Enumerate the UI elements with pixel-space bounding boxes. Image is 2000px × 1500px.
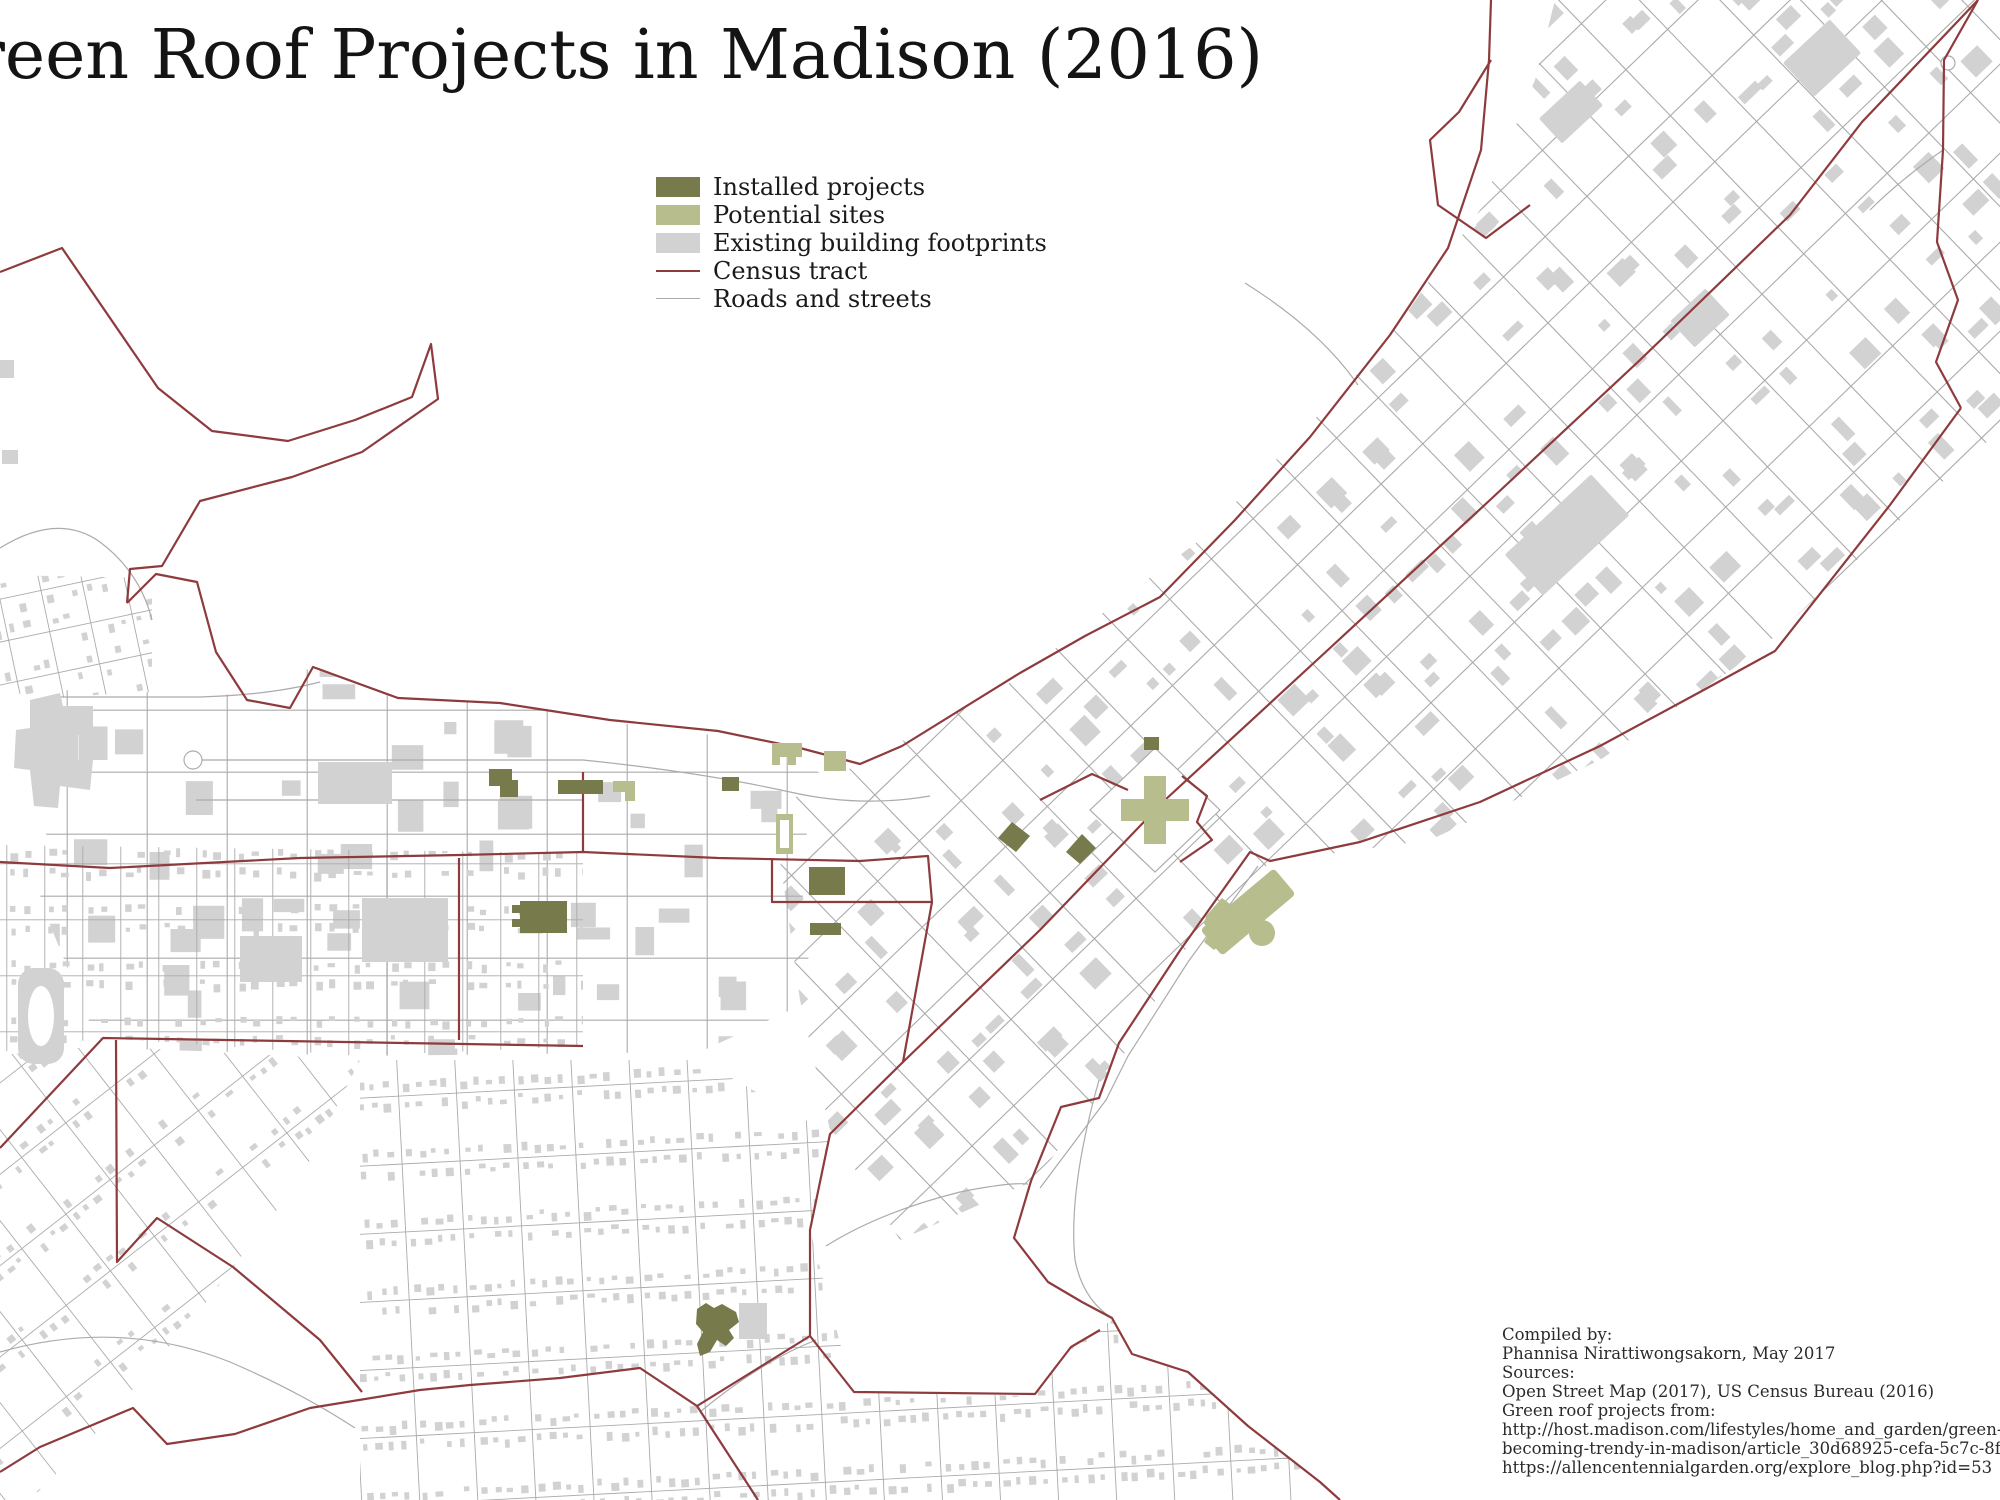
legend-swatch-installed-icon: [656, 177, 700, 197]
legend-swatch-potential-icon: [656, 205, 700, 225]
page-title: Green Roof Projects in Madison (2016): [0, 16, 1263, 95]
district-near-west: [0, 472, 956, 1478]
legend-swatch-roads-line-icon: [656, 298, 700, 300]
legend-label-potential: Potential sites: [713, 203, 885, 227]
legend-item-potential: Potential sites: [656, 204, 1047, 225]
legend-label-roads: Roads and streets: [713, 287, 932, 311]
credits-line: https://allencentennialgarden.org/explor…: [1502, 1458, 2000, 1477]
legend-label-installed: Installed projects: [713, 175, 925, 199]
credits-block: Compiled by: Phannisa Nirattiwongsakorn,…: [1502, 1325, 2000, 1477]
legend-swatch-footprints-icon: [656, 233, 700, 253]
credits-line: http://host.madison.com/lifestyles/home_…: [1502, 1420, 2000, 1439]
legend-label-footprints: Existing building footprints: [713, 231, 1047, 255]
credits-line: Green roof projects from:: [1502, 1401, 2000, 1420]
credits-line: Open Street Map (2017), US Census Bureau…: [1502, 1382, 2000, 1401]
map-poster: Green Roof Projects in Madison (2016) In…: [0, 0, 2000, 1500]
credits-line: becoming-trendy-in-madison/article_30d68…: [1502, 1439, 2000, 1458]
legend-label-census: Census tract: [713, 259, 867, 283]
legend-item-footprints: Existing building footprints: [656, 232, 1047, 253]
credits-line: Phannisa Nirattiwongsakorn, May 2017: [1502, 1344, 2000, 1363]
credits-line: Compiled by:: [1502, 1325, 2000, 1344]
credits-line: Sources:: [1502, 1363, 2000, 1382]
legend: Installed projects Potential sites Exist…: [656, 176, 1047, 309]
legend-swatch-census-line-icon: [656, 270, 700, 272]
district-southwest-diagonal: [0, 532, 946, 1500]
legend-item-installed: Installed projects: [656, 176, 1047, 197]
legend-item-roads: Roads and streets: [656, 288, 1047, 309]
legend-item-census: Census tract: [656, 260, 1047, 281]
